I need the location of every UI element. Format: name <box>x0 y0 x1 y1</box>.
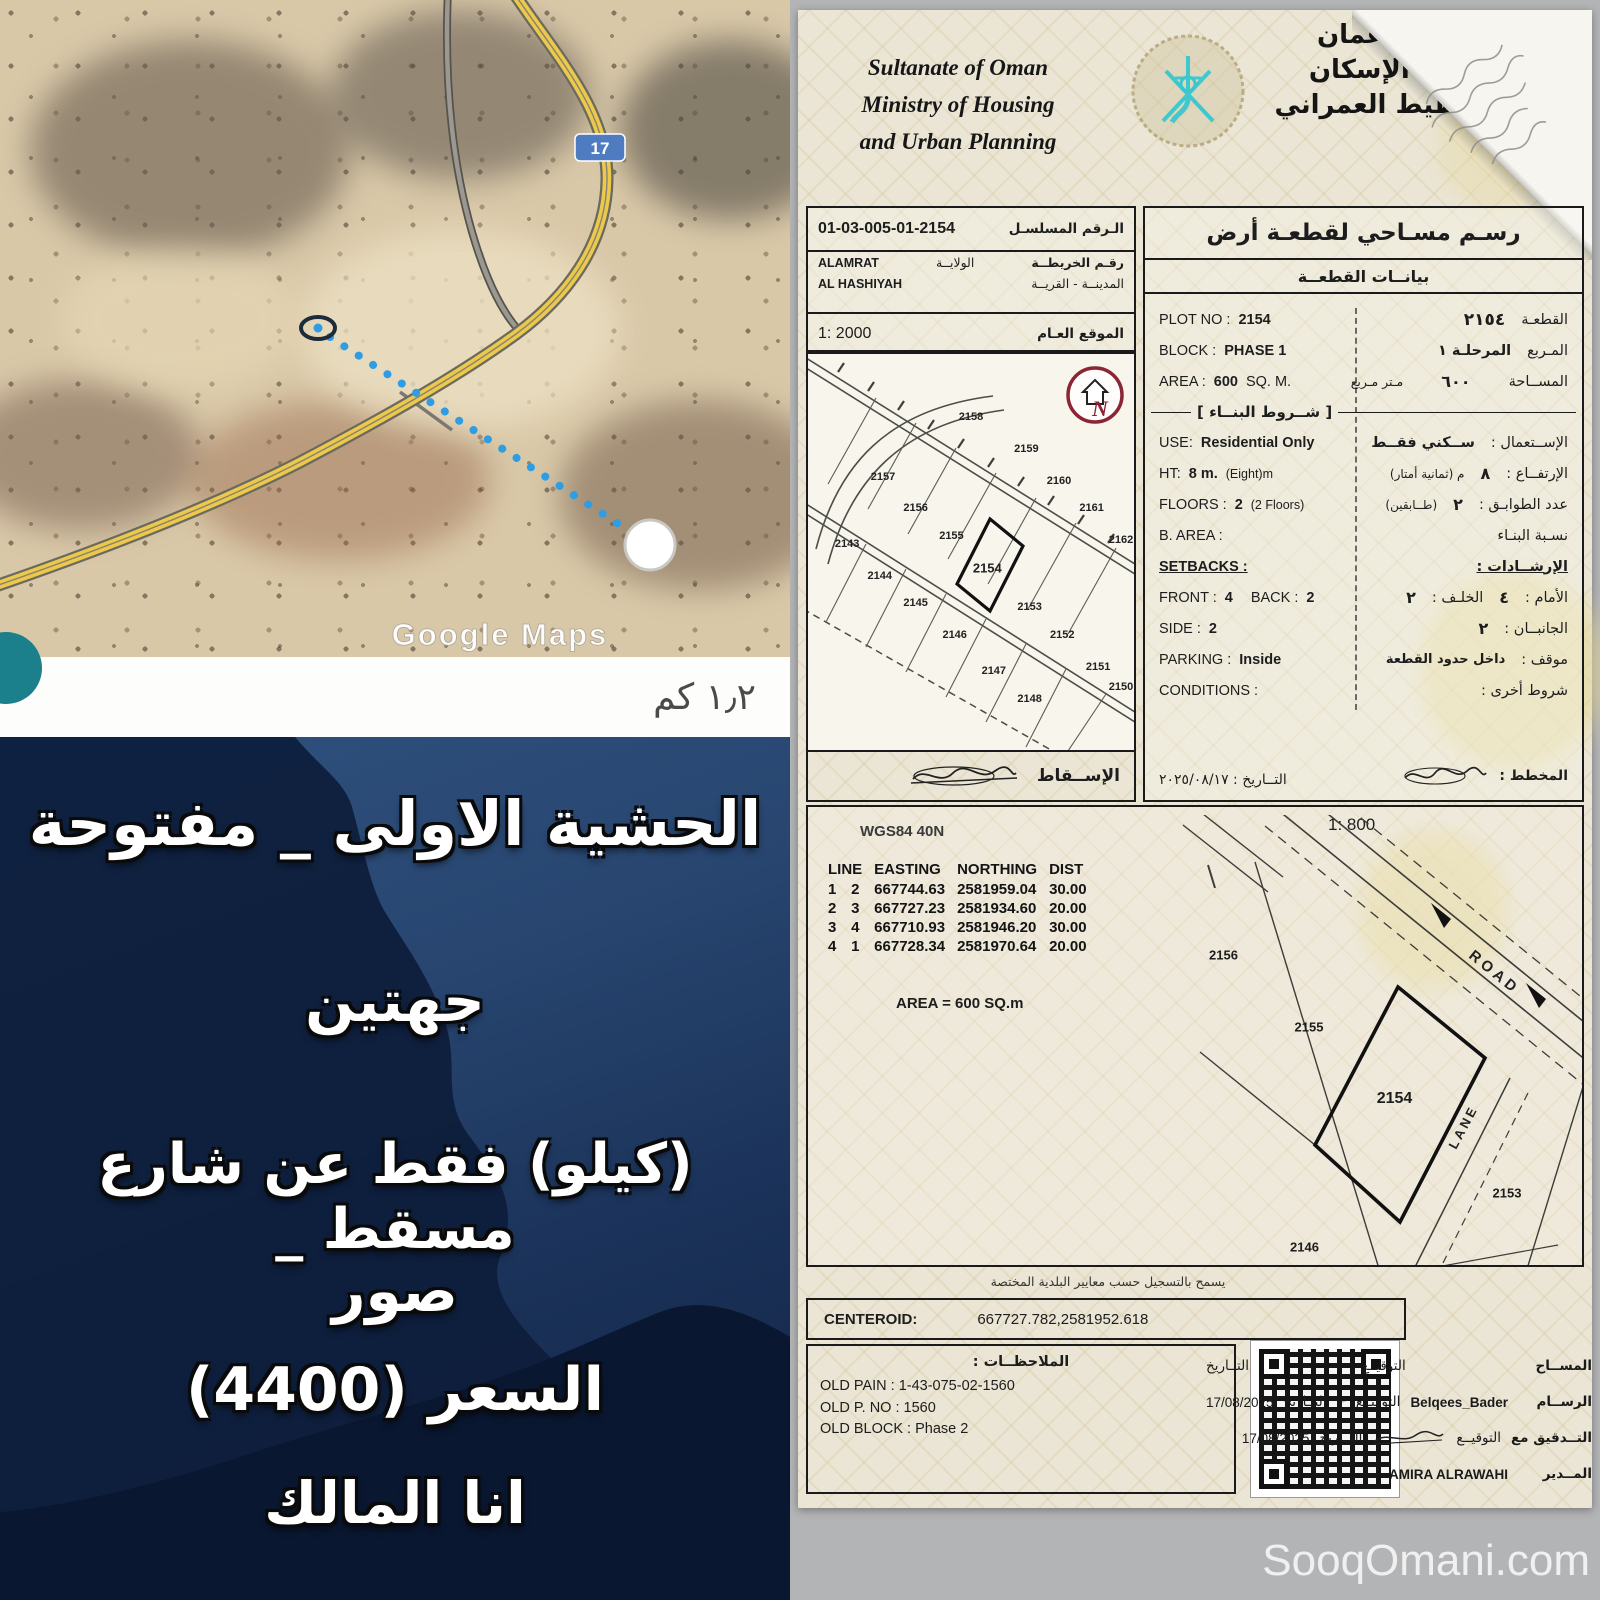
projection-row: الإســقاط <box>806 752 1136 802</box>
use-ar-value: ســكني فقــط <box>1371 435 1475 451</box>
draftsman-row: الرســام Belqees_Bader التوقيــع التــار… <box>1206 1384 1592 1420</box>
sign-label: التوقيــع <box>1259 1358 1508 1374</box>
highway <box>0 0 607 588</box>
field-front-back: FRONT :4BACK :2 الأمام :٤الخلـف :٢ <box>1151 582 1576 613</box>
oman-ministry-emblem <box>1128 26 1248 156</box>
highway-casing <box>0 0 607 588</box>
field-side: SIDE :2 الجانبــان :٢ <box>1151 613 1576 644</box>
front-en-value: 4 <box>1225 590 1233 606</box>
measure-end-point[interactable] <box>625 520 675 570</box>
surveyor-row: المســاح التوقيــع التــاريخ <box>1206 1348 1592 1384</box>
field-use: USE:Residential Only الإســتعمال :ســكني… <box>1151 427 1576 458</box>
ad-line-6: انا المالك <box>0 1469 790 1537</box>
site-location-label: الموقع العـام <box>1037 326 1124 342</box>
front-ar-value: ٤ <box>1499 588 1509 607</box>
field-parking: PARKING :Inside موقف :داخل حدود القطعة <box>1151 644 1576 675</box>
area-ar-unit: مـتر مـربع <box>1351 374 1403 389</box>
loc-map-scale: 1: 2000 <box>818 325 871 343</box>
use-en-value: Residential Only <box>1201 435 1315 451</box>
city-label: المدينــة - القريــة <box>1031 276 1124 291</box>
audit-label: التــدقيق مع <box>1511 1430 1592 1446</box>
highway-center-line <box>0 0 607 588</box>
city-value: AL HASHIYAH <box>818 277 902 291</box>
field-height: HT:8 m.(Eight)m الإرتفــاع :٨م (ثمانية أ… <box>1151 458 1576 489</box>
plot-en-value: 2154 <box>1238 312 1270 328</box>
measure-start-dot <box>314 324 323 333</box>
ministry-header-english: Sultanate of Oman Ministry of Housing an… <box>818 50 1098 160</box>
map-overlay-graphics: 17 Google Maps <box>0 0 790 657</box>
date-label: التــاريخ <box>1284 1394 1327 1410</box>
document-title: رسـم مسـاحي لقطعـة أرض <box>1145 208 1582 260</box>
plot-number: 2156 <box>903 502 927 514</box>
front-ar-label: الأمام : <box>1525 590 1568 606</box>
plot-number: 2162 <box>1109 534 1133 546</box>
coords-row: 34667710.932581946.2030.00 <box>828 918 1099 937</box>
col-dist: DIST <box>1049 859 1099 880</box>
planner-date-row: التــاريخ : ٢٠٢٥/٠٨/١٧ المخطط : <box>1151 764 1576 794</box>
coordinates-table: LINE EASTING NORTHING DIST 12667744.6325… <box>828 859 1099 956</box>
sign-label: التوقيــع <box>1456 1430 1501 1446</box>
parking-en-value: Inside <box>1239 652 1281 668</box>
plot-number: 2145 <box>903 597 927 609</box>
plot-number: 2146 <box>942 629 966 641</box>
google-maps-satellite-view: 17 Google Maps <box>0 0 790 657</box>
side-ar-value: ٢ <box>1479 619 1489 638</box>
header-en-line3: and Urban Planning <box>818 124 1098 161</box>
other-ar-label: شروط أخرى : <box>1481 683 1568 699</box>
plot-ar-label: القطعـة <box>1521 312 1568 328</box>
setbacks-en-label: SETBACKS : <box>1159 559 1248 575</box>
parking-en-label: PARKING : <box>1159 652 1231 668</box>
plot-number: 2159 <box>1014 443 1038 455</box>
block-ar-value: المرحلـة ١ <box>1438 343 1511 359</box>
notes-box: الملاحظــات : OLD PAIN : 1-43-075-02-156… <box>806 1344 1236 1494</box>
site-plot-number: 2155 <box>1295 1019 1324 1034</box>
site-plot-number: 2146 <box>1290 1240 1319 1255</box>
ht-en-label: HT: <box>1159 466 1181 482</box>
registration-note: يسمح بالتسجيل حسب معايير البلدية المختصة <box>828 1274 1388 1289</box>
old-block: OLD BLOCK : Phase 2 <box>820 1419 1222 1441</box>
date-label: التــاريخ <box>1319 1430 1362 1446</box>
north-arrow-icon: N <box>1064 364 1126 426</box>
centeroid-label: CENTEROID: <box>824 1311 917 1328</box>
floors-ar-value: ٢ <box>1453 495 1463 514</box>
area-en-value: 600 <box>1214 374 1238 390</box>
field-setbacks-header: SETBACKS : الإرشــادات : <box>1151 551 1576 582</box>
floors-en-value: 2 <box>1235 497 1243 513</box>
serial-location-table: 01-03-005-01-2154 الـرقم المسلسـل ALAMRA… <box>806 206 1136 352</box>
field-conditions: CONDITIONS : شروط أخرى : <box>1151 675 1576 706</box>
ad-lines: الحشية الاولى _ مفتوحة جهتين (كيلو) فقط … <box>0 737 790 1600</box>
ht-ar-label: الإرتفــاع : <box>1506 466 1568 482</box>
building-conditions-divider: [ شــروط البنــاء ] <box>1151 403 1576 421</box>
barea-ar-label: نسـبة البنـاء <box>1497 528 1568 544</box>
plot-number: 2154 <box>973 560 1002 575</box>
block-ar-label: المـربع <box>1527 343 1568 359</box>
manager-label: المــدير <box>1518 1466 1592 1482</box>
planner-signature <box>1401 764 1489 788</box>
side-en-value: 2 <box>1209 621 1217 637</box>
use-ar-label: الإســتعمال : <box>1491 435 1568 451</box>
block-en-label: BLOCK : <box>1159 343 1216 359</box>
sign-label: التوقيــع <box>1356 1394 1401 1410</box>
col-easting: EASTING <box>874 859 957 880</box>
notes-title: الملاحظــات : <box>820 1352 1222 1374</box>
floors-en-unit: (2 Floors) <box>1251 498 1304 512</box>
site-plan-1-800: ROAD LANE 21562155215421532146 <box>1138 815 1584 1265</box>
planner-label: المخطط : <box>1499 768 1568 784</box>
col-northing: NORTHING <box>957 859 1049 880</box>
secondary-road <box>447 0 522 334</box>
plot-number: 2148 <box>1017 693 1041 705</box>
back-ar-label: الخلـف : <box>1432 590 1483 606</box>
plot-number: 2161 <box>1079 502 1103 514</box>
location-map-1-2000: 2158215921572160215621612143215521622154… <box>806 352 1136 752</box>
date-label: التــاريخ <box>1206 1358 1249 1374</box>
serial-value: 01-03-005-01-2154 <box>818 220 955 238</box>
ad-line-1: الحشية الاولى _ مفتوحة <box>0 787 790 860</box>
sooqomani-watermark: SooqOmani.com <box>1262 1536 1590 1586</box>
front-en-label: FRONT : <box>1159 590 1217 606</box>
projection-label: الإســقاط <box>1037 766 1120 786</box>
side-en-label: SIDE : <box>1159 621 1201 637</box>
block-en-value: PHASE 1 <box>1224 343 1286 359</box>
projection-signature <box>909 763 1019 789</box>
audit-date: 17/08/2025 <box>1242 1431 1310 1446</box>
plot-number: 2160 <box>1047 475 1071 487</box>
parking-ar-label: موقف : <box>1521 652 1568 668</box>
ad-line-2: جهتين <box>0 967 790 1035</box>
area-en-unit: SQ. M. <box>1246 374 1291 390</box>
back-ar-value: ٢ <box>1406 588 1416 607</box>
field-floors: FLOORS :2(2 Floors) عدد الطوابـق :٢(طــا… <box>1151 489 1576 520</box>
surveyor-label: المســاح <box>1518 1358 1592 1374</box>
ht-en-unit: (Eight)m <box>1226 467 1273 481</box>
left-column: 17 Google Maps ١٫٢ كم الح <box>0 0 790 1600</box>
draftsman-name: Belqees_Bader <box>1410 1395 1508 1410</box>
plot-number: 2143 <box>835 538 859 550</box>
plot-number: 2150 <box>1109 681 1133 693</box>
barea-en-label: B. AREA : <box>1159 528 1223 544</box>
ad-line-4: صور <box>0 1257 790 1325</box>
plot-en-label: PLOT NO : <box>1159 312 1230 328</box>
area-ar-value: ٦٠٠ <box>1441 372 1470 391</box>
field-block: BLOCK :PHASE 1 المـربعالمرحلـة ١ <box>1151 335 1576 366</box>
site-plan-labels: 21562155215421532146 <box>1138 815 1584 1265</box>
plot-number: 2153 <box>1017 601 1041 613</box>
survey-section: WGS84 40N 1: 800 LINE EASTING NORTHING D… <box>806 805 1584 1267</box>
use-en-label: USE: <box>1159 435 1193 451</box>
plot-number: 2151 <box>1086 661 1110 673</box>
survey-date: التــاريخ : ٢٠٢٥/٠٨/١٧ <box>1159 772 1287 788</box>
parking-ar-value: داخل حدود القطعة <box>1386 652 1505 667</box>
plot-data-panel: رسـم مسـاحي لقطعـة أرض بيانــات القطعــة… <box>1143 206 1584 802</box>
plot-data-title: بيانــات القطعــة <box>1145 260 1582 294</box>
ad-line-3: (كيلو) فقط عن شارع مسقط _ <box>0 1132 790 1262</box>
ht-ar-unit: م (ثمانية أمتار) <box>1390 467 1465 481</box>
route-17-shield: 17 <box>575 134 625 161</box>
ht-en-value: 8 m. <box>1189 466 1218 482</box>
wilayat-label: الولايــة <box>936 255 974 270</box>
ad-line-5: السعر (4400) <box>0 1355 790 1425</box>
distance-measure-line[interactable] <box>330 337 640 538</box>
coords-row: 12667744.632581959.0430.00 <box>828 880 1099 899</box>
area-en-label: AREA : <box>1159 374 1206 390</box>
header-en-line1: Sultanate of Oman <box>818 50 1098 87</box>
side-ar-label: الجانبــان : <box>1504 621 1568 637</box>
plot-number: 2152 <box>1050 629 1074 641</box>
serial-label: الـرقم المسلسـل <box>1009 221 1124 237</box>
coords-row: 23667727.232581934.6020.00 <box>828 899 1099 918</box>
guidance-ar-label: الإرشــادات : <box>1476 559 1568 575</box>
svg-text:N: N <box>1091 396 1109 421</box>
draftsman-label: الرســام <box>1518 1394 1592 1410</box>
building-conditions-title: [ شــروط البنــاء ] <box>1197 403 1332 421</box>
draftsman-signature <box>1337 1392 1346 1412</box>
survey-document: Sultanate of Oman Ministry of Housing an… <box>798 10 1592 1508</box>
handwriting-scribbles <box>1372 10 1592 230</box>
centeroid-row: CENTEROID: 667727.782,2581952.618 <box>806 1298 1406 1340</box>
signatures-table: المســاح التوقيــع التــاريخ الرســام Be… <box>1206 1348 1592 1498</box>
field-barea: B. AREA : نسـبة البنـاء <box>1151 520 1576 551</box>
distance-label: ١٫٢ كم <box>653 677 756 718</box>
listing-image: 17 Google Maps ١٫٢ كم الح <box>0 0 1600 1600</box>
site-plot-number: 2153 <box>1493 1186 1522 1201</box>
plot-number: 2147 <box>982 665 1006 677</box>
coords-table-body: 12667744.632581959.0430.0023667727.23258… <box>828 880 1099 956</box>
site-plot-number: 2156 <box>1209 947 1238 962</box>
manager-row: المــدير AMIRA ALRAWAHI <box>1206 1456 1592 1492</box>
plot-number: 2157 <box>871 471 895 483</box>
plot-ar-value: ٢١٥٤ <box>1464 310 1506 330</box>
back-en-label: BACK : <box>1251 590 1299 606</box>
floors-ar-unit: (طــابقين) <box>1385 498 1437 512</box>
scale-row: 1: 2000 الموقع العـام <box>808 314 1134 354</box>
old-plot-no: OLD P. NO : 1560 <box>820 1398 1222 1420</box>
manager-name: AMIRA ALRAWAHI <box>1389 1467 1508 1482</box>
site-plot-number: 2154 <box>1377 1090 1413 1108</box>
wilayat-value: ALAMRAT <box>818 256 879 270</box>
map-no-label: رقـم الخريطــة <box>1031 255 1124 270</box>
field-plot: PLOT NO :2154 القطعـة٢١٥٤ <box>1151 304 1576 335</box>
ht-ar-value: ٨ <box>1481 464 1491 483</box>
back-en-value: 2 <box>1306 590 1314 606</box>
floors-ar-label: عدد الطوابـق : <box>1479 497 1568 513</box>
location-row: ALAMRAT الولايــة رقـم الخريطــة AL HASH… <box>808 252 1134 314</box>
audit-row: التــدقيق مع التوقيــع التــاريخ 17/08/2… <box>1206 1420 1592 1456</box>
plot-number: 2144 <box>867 570 891 582</box>
field-area: AREA :600SQ. M. المســاحة٦٠٠مـتر مـربع <box>1151 366 1576 397</box>
document-photo-area: Sultanate of Oman Ministry of Housing an… <box>790 0 1600 1600</box>
serial-row: 01-03-005-01-2154 الـرقم المسلسـل <box>808 208 1134 252</box>
draftsman-date: 17/08/2025 <box>1206 1395 1274 1410</box>
plot-number: 2155 <box>939 530 963 542</box>
datum-label: WGS84 40N <box>860 823 944 840</box>
plot-number: 2158 <box>959 411 983 423</box>
ad-text-panel: الحشية الاولى _ مفتوحة جهتين (كيلو) فقط … <box>0 737 790 1600</box>
plot-fields: PLOT NO :2154 القطعـة٢١٥٤ BLOCK :PHASE 1… <box>1145 294 1582 800</box>
area-ar-label: المســاحة <box>1509 374 1568 390</box>
distance-strip: ١٫٢ كم <box>0 657 790 737</box>
old-pain: OLD PAIN : 1-43-075-02-1560 <box>820 1376 1222 1398</box>
coords-header-row: LINE EASTING NORTHING DIST <box>828 859 1099 880</box>
audit-signature <box>1372 1428 1446 1448</box>
header-en-line2: Ministry of Housing <box>818 87 1098 124</box>
svg-text:17: 17 <box>591 139 610 158</box>
coords-row: 41667728.342581970.6420.00 <box>828 937 1099 956</box>
computed-area-note: AREA = 600 SQ.m <box>896 995 1023 1012</box>
floors-en-label: FLOORS : <box>1159 497 1227 513</box>
centeroid-value: 667727.782,2581952.618 <box>977 1311 1148 1328</box>
col-line: LINE <box>828 859 874 880</box>
google-maps-watermark: Google Maps <box>392 617 609 652</box>
conditions-en-label: CONDITIONS : <box>1159 683 1258 699</box>
